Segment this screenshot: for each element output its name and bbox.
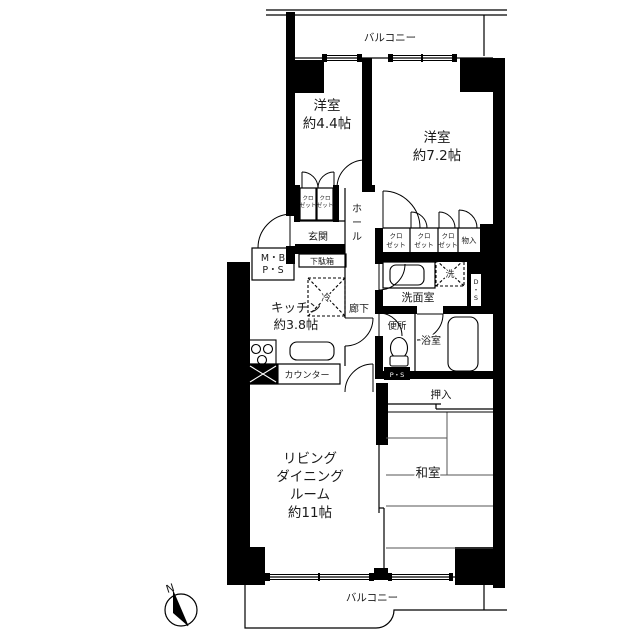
bathroom-label: 浴室 (421, 334, 441, 347)
duct-space-label: ・ (473, 286, 480, 294)
duct-space-label: D (473, 278, 478, 286)
hall-label: ホ (352, 203, 362, 215)
walls (227, 12, 505, 588)
kitchen-size: 約3.8帖 (274, 317, 319, 332)
closet-row-label: クロ (442, 232, 455, 240)
washer-label: 洗 (445, 268, 454, 280)
washbasin-counter (383, 262, 435, 288)
wall-segment (286, 12, 295, 216)
bedroom1-name: 洋室 (314, 97, 341, 114)
hall-label: ー (352, 218, 362, 229)
stove-burner (252, 345, 261, 354)
wall-segment (374, 568, 388, 580)
compass-needle (173, 591, 188, 626)
stove-burner (264, 345, 273, 354)
tatami-grid (386, 412, 493, 548)
closet-row-label: クロ (418, 232, 431, 240)
fridge-label: 冷 (321, 292, 331, 304)
meter-box-label: P・S (262, 265, 283, 276)
counter-hatch (248, 364, 278, 384)
toilet-tank (390, 356, 408, 366)
wall-segment (375, 228, 383, 252)
wall-segment (493, 58, 505, 588)
compass: N (164, 581, 197, 626)
stove-burner (258, 356, 267, 365)
bedroom1-door (337, 160, 365, 188)
japanese-room-label: 和室 (415, 465, 440, 480)
bedroom2-size: 約7.2帖 (413, 148, 461, 164)
wall-segment (286, 60, 324, 93)
bathtub (448, 317, 478, 371)
duct-space-label: S (474, 294, 478, 302)
entrance-label: 玄関 (308, 230, 328, 243)
bedroom1-size: 約4.4帖 (303, 116, 351, 132)
window-cap (421, 54, 423, 62)
window-cap (449, 573, 453, 581)
washroom-label: 洗面室 (402, 290, 435, 304)
wall-segment (333, 185, 339, 222)
wall-segment (375, 252, 383, 264)
closet-row-doors (411, 210, 477, 228)
closet-small-label: クロ (319, 195, 330, 202)
corridor-label: 廊下 (349, 302, 369, 315)
balcony-bottom-label: バルコニー (346, 592, 398, 604)
bedroom2-door (383, 191, 420, 228)
kitchen-sink (290, 342, 334, 360)
closet-row-label: クロ (390, 232, 403, 240)
window-cap (265, 573, 270, 581)
wall-segment (455, 547, 505, 585)
compass-north-label: N (164, 581, 176, 596)
living-label: リビング (283, 451, 337, 467)
hall-label: ル (352, 232, 362, 243)
kitchen-name: キッチン (271, 300, 321, 315)
window-cap (452, 54, 457, 62)
bedroom2-name: 洋室 (424, 129, 451, 146)
closet-row-label: ゼット (386, 240, 406, 249)
living-door (345, 364, 373, 392)
wall-segment (295, 244, 345, 254)
living-label: ダイニング (276, 469, 344, 485)
futon-closet-label: 押入 (431, 388, 452, 401)
wall-segment (443, 306, 493, 314)
washbasin (390, 265, 424, 285)
closet-row-label: ゼット (438, 240, 458, 249)
wall-segment (227, 262, 250, 547)
closet-small-label: ゼット (300, 201, 317, 209)
window-cap (388, 573, 392, 581)
storage-label: 物入 (462, 235, 477, 245)
kitchen-door (345, 318, 373, 346)
living-label: 約11帖 (288, 505, 332, 521)
bedroom1-closet-doors (302, 172, 334, 188)
wall-segment (480, 224, 505, 262)
closet-row-label: ゼット (414, 240, 434, 249)
wall-segment (362, 185, 375, 192)
wall-segment (362, 58, 372, 188)
toilet-bowl (391, 338, 408, 359)
toilet-label: 便所 (387, 320, 407, 332)
shoe-cabinet-label: 下駄箱 (310, 256, 334, 266)
wall-segment (227, 547, 265, 585)
closet-small-label: ゼット (317, 201, 334, 209)
counter-label: カウンター (284, 370, 329, 381)
window-cap (357, 54, 362, 62)
floor-plan: N バルコニー 洋室 約4.4帖 洋室 約7.2帖 クロ ゼット クロ ゼット … (0, 0, 640, 640)
living-label: ルーム (290, 487, 330, 503)
window-cap (369, 573, 374, 581)
window-cap (322, 54, 327, 62)
balcony-top-label: バルコニー (364, 32, 416, 44)
wall-segment (376, 383, 388, 445)
window-cap (318, 573, 320, 581)
entrance-door (258, 214, 290, 248)
meter-box-label: M・B (261, 253, 285, 264)
closet-small-label: クロ (302, 195, 313, 202)
window-cap (388, 54, 393, 62)
wall-segment (375, 336, 383, 371)
pipe-space-label: P・S (390, 371, 405, 379)
